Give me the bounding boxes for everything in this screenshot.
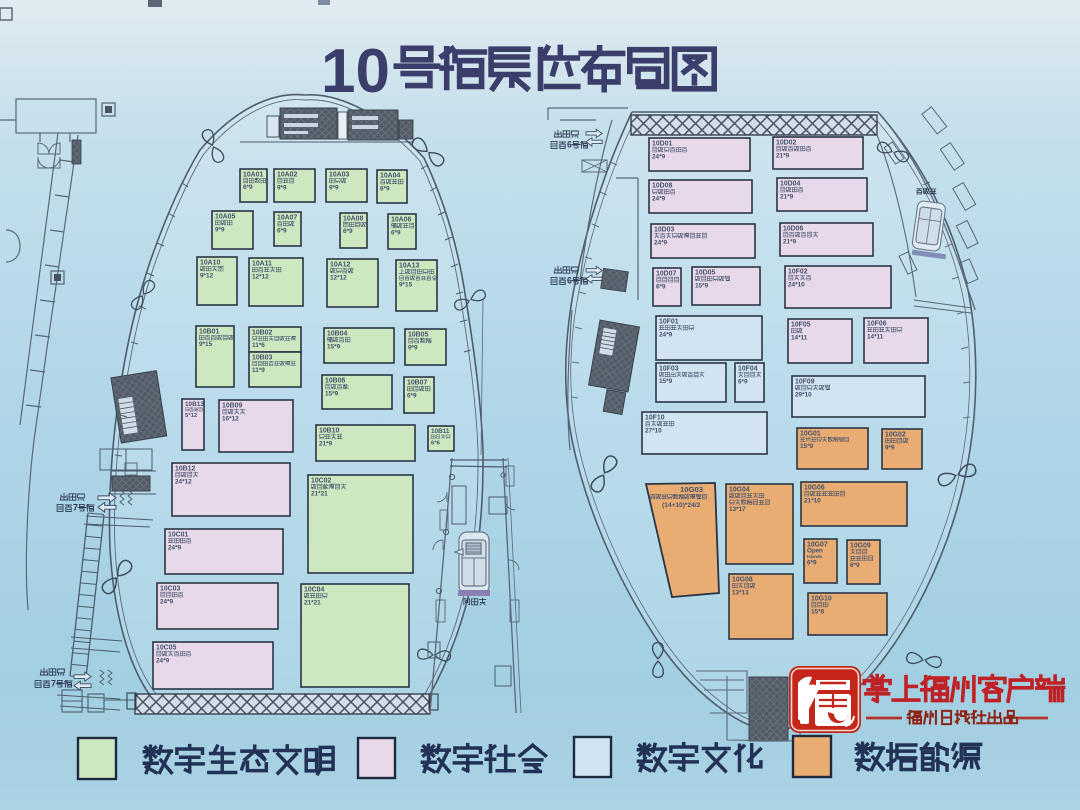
svg-text:10A01: 10A01: [243, 171, 263, 178]
svg-text:10G04: 10G04: [729, 486, 750, 493]
svg-text:10F05: 10F05: [791, 321, 811, 328]
svg-text:15*9: 15*9: [695, 282, 709, 289]
svg-text:6*9: 6*9: [277, 227, 287, 234]
svg-text:21*21: 21*21: [311, 490, 328, 497]
svg-text:6: 6: [567, 276, 572, 286]
svg-text:10: 10: [321, 37, 390, 106]
svg-text:10B13: 10B13: [185, 401, 204, 408]
svg-text:10F09: 10F09: [795, 378, 815, 385]
svg-text:9*9: 9*9: [408, 344, 418, 351]
svg-text:9*9: 9*9: [885, 444, 895, 451]
svg-text:15*9: 15*9: [325, 390, 339, 397]
svg-text:10F06: 10F06: [867, 320, 887, 327]
svg-text:10A03: 10A03: [329, 171, 349, 178]
svg-text:21*9: 21*9: [783, 238, 797, 245]
svg-text:10G09: 10G09: [850, 542, 871, 549]
svg-text:10G02: 10G02: [885, 431, 906, 438]
svg-text:14*11: 14*11: [791, 334, 808, 341]
svg-text:9*15: 9*15: [199, 341, 213, 348]
svg-text:24*9: 24*9: [652, 153, 666, 160]
svg-text:13*13: 13*13: [732, 589, 749, 596]
svg-text:10B09: 10B09: [222, 402, 242, 409]
svg-text:10D06: 10D06: [783, 225, 803, 232]
svg-text:10B11: 10B11: [431, 428, 450, 435]
svg-text:10A10: 10A10: [200, 259, 220, 266]
svg-text:10D01: 10D01: [652, 140, 672, 147]
svg-text:10G01: 10G01: [800, 430, 821, 437]
svg-text:6*9: 6*9: [656, 283, 666, 290]
svg-text:6*9: 6*9: [343, 228, 353, 235]
svg-text:24*9: 24*9: [652, 195, 666, 202]
svg-text:10D07: 10D07: [656, 270, 676, 277]
svg-text:10B05: 10B05: [408, 331, 428, 338]
svg-text:5*12: 5*12: [185, 413, 198, 419]
svg-text:10A04: 10A04: [380, 172, 400, 179]
svg-text:10A11: 10A11: [252, 260, 272, 267]
svg-text:24*9: 24*9: [156, 657, 170, 664]
svg-text:10B10: 10B10: [319, 427, 339, 434]
svg-text:9*15: 9*15: [399, 281, 413, 288]
svg-text:15*9: 15*9: [800, 443, 814, 450]
svg-text:15*9: 15*9: [659, 378, 673, 385]
svg-text:24*9: 24*9: [659, 331, 673, 338]
svg-text:24*10: 24*10: [788, 281, 805, 288]
svg-text:10B07: 10B07: [407, 379, 427, 386]
svg-text:6*6: 6*6: [431, 440, 441, 446]
svg-text:10B01: 10B01: [199, 328, 219, 335]
svg-text:27*10: 27*10: [645, 427, 662, 434]
svg-text:21*9: 21*9: [319, 440, 333, 447]
svg-text:10C03: 10C03: [160, 585, 180, 592]
svg-text:6*9: 6*9: [407, 392, 417, 399]
svg-text:12*12: 12*12: [330, 274, 347, 281]
svg-text:6*9: 6*9: [243, 184, 253, 191]
svg-text:10F10: 10F10: [645, 414, 665, 421]
svg-text:9*9: 9*9: [277, 184, 287, 191]
svg-text:6*9: 6*9: [807, 559, 817, 566]
svg-text:10B02: 10B02: [252, 329, 272, 336]
svg-text:21*21: 21*21: [304, 599, 321, 606]
svg-text:9*9: 9*9: [329, 184, 339, 191]
svg-text:10F03: 10F03: [659, 365, 679, 372]
svg-text:6*9: 6*9: [850, 562, 860, 569]
svg-text:12*12: 12*12: [252, 273, 269, 280]
svg-text:10A02: 10A02: [277, 171, 297, 178]
svg-text:10A12: 10A12: [330, 261, 350, 268]
svg-text:15*8: 15*8: [811, 608, 825, 615]
svg-text:10D05: 10D05: [695, 269, 715, 276]
svg-text:7: 7: [73, 503, 78, 513]
svg-text:10C01: 10C01: [168, 531, 188, 538]
svg-text:(14+10)*24/2: (14+10)*24/2: [662, 502, 701, 509]
svg-text:10C04: 10C04: [304, 586, 324, 593]
svg-text:6*9: 6*9: [380, 185, 390, 192]
svg-text:10F04: 10F04: [738, 365, 758, 372]
svg-text:10C02: 10C02: [311, 477, 331, 484]
svg-text:24*9: 24*9: [654, 239, 668, 246]
svg-text:9*12: 9*12: [200, 272, 214, 279]
svg-text:9*9: 9*9: [215, 226, 225, 233]
svg-text:10A08: 10A08: [343, 215, 363, 222]
svg-text:21*9: 21*9: [776, 152, 790, 159]
svg-text:10D04: 10D04: [780, 180, 800, 187]
svg-text:Islands: Islands: [807, 554, 823, 559]
svg-text:7: 7: [51, 679, 56, 689]
svg-text:24*9: 24*9: [160, 598, 174, 605]
svg-text:10D02: 10D02: [776, 139, 796, 146]
svg-text:10G08: 10G08: [732, 576, 753, 583]
svg-text:10B04: 10B04: [327, 330, 347, 337]
svg-text:10C05: 10C05: [156, 644, 176, 651]
svg-text:10B12: 10B12: [175, 465, 195, 472]
svg-text:6*9: 6*9: [738, 378, 748, 385]
svg-text:10G10: 10G10: [811, 595, 832, 602]
svg-text:10G06: 10G06: [804, 484, 825, 491]
svg-text:21*10: 21*10: [804, 497, 821, 504]
svg-text:10F01: 10F01: [659, 318, 679, 325]
svg-text:16*12: 16*12: [222, 415, 239, 422]
svg-text:11*9: 11*9: [252, 367, 265, 374]
svg-text:10A05: 10A05: [215, 213, 235, 220]
svg-text:10A06: 10A06: [391, 216, 411, 223]
svg-text:10A13: 10A13: [399, 262, 419, 269]
svg-text:24*12: 24*12: [175, 478, 192, 485]
svg-text:10D03: 10D03: [654, 226, 674, 233]
svg-text:10B03: 10B03: [252, 354, 272, 361]
svg-text:10B06: 10B06: [325, 377, 345, 384]
svg-text:6*9: 6*9: [391, 229, 401, 236]
svg-text:10G03: 10G03: [680, 485, 703, 494]
svg-text:15*9: 15*9: [327, 343, 341, 350]
svg-text:29*10: 29*10: [795, 391, 812, 398]
svg-text:11*6: 11*6: [252, 342, 265, 349]
svg-text:14*11: 14*11: [867, 333, 884, 340]
svg-text:21*9: 21*9: [780, 193, 794, 200]
svg-text:10A07: 10A07: [277, 214, 297, 221]
svg-text:24*9: 24*9: [168, 544, 182, 551]
svg-text:10D08: 10D08: [652, 182, 672, 189]
svg-text:10F02: 10F02: [788, 268, 808, 275]
svg-text:6: 6: [567, 140, 572, 150]
svg-text:13*17: 13*17: [729, 506, 746, 513]
